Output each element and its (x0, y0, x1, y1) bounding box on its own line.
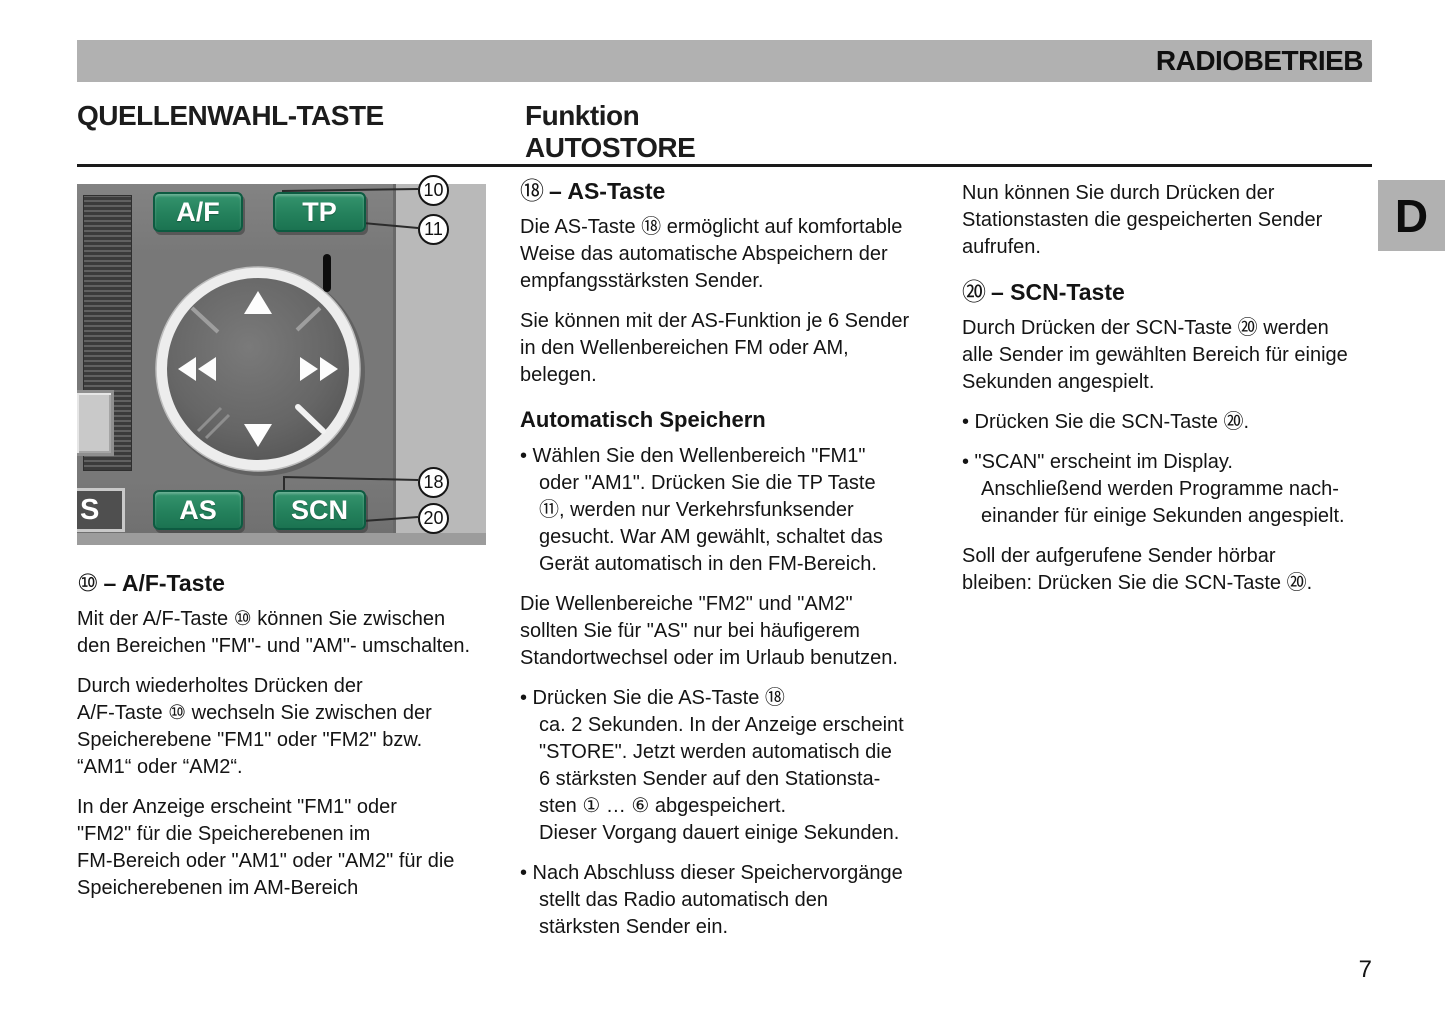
heading-af-number: ⑩ (77, 570, 99, 597)
callout-20: 20 (418, 503, 449, 534)
section-title-funktion-line1: Funktion (525, 100, 695, 132)
radio-illustration: S (77, 184, 486, 545)
heading-as-taste: ⑱– AS-Taste (520, 176, 952, 207)
heading-as-label: – AS-Taste (549, 178, 665, 204)
chapter-tab-d: D (1378, 180, 1445, 251)
heading-af-taste: ⑩– A/F-Taste (77, 568, 492, 599)
illustration-bottom-edge (77, 533, 486, 545)
bullet-select-band: • Wählen Sie den Wellenbereich "FM1" ode… (520, 443, 952, 578)
heading-af-label: – A/F-Taste (104, 570, 225, 596)
section-title-funktion-line2: AUTOSTORE (525, 132, 695, 164)
manual-page: RADIOBETRIEB QUELLENWAHL-TASTE Funktion … (0, 0, 1445, 1025)
paragraph-scn-intro: Durch Drücken der SCN-Taste ⑳ werden all… (962, 315, 1376, 396)
header-bar: RADIOBETRIEB (77, 40, 1372, 82)
heading-as-number: ⑱ (520, 178, 544, 205)
paragraph-fm2-am2-advice: Die Wellenbereiche "FM2" und "AM2" sollt… (520, 591, 952, 672)
bullet-scan-display: • "SCAN" erscheint im Display. Anschließ… (962, 449, 1376, 530)
section-title-funktion: Funktion AUTOSTORE (525, 100, 695, 164)
callout-18: 18 (418, 467, 449, 498)
bullet-press-as: • Drücken Sie die AS-Taste ⑱ ca. 2 Sekun… (520, 685, 952, 847)
callout-10: 10 (418, 175, 449, 206)
tp-button: TP (273, 192, 366, 232)
subheading-automatisch-speichern: Automatisch Speichern (520, 406, 952, 434)
heading-scn-number: ⑳ (962, 279, 986, 306)
paragraph-keep-station: Soll der aufgerufene Sender hörbar bleib… (962, 543, 1376, 597)
page-title: RADIOBETRIEB (1156, 40, 1363, 82)
bullet-after-store: • Nach Abschluss dieser Speichervorgänge… (520, 860, 952, 941)
column-right: Nun können Sie durch Drücken der Station… (962, 180, 1376, 610)
bullet-press-scn: • Drücken Sie die SCN-Taste ⑳. (962, 409, 1376, 436)
paragraph-as-capacity: Sie können mit der AS-Funktion je 6 Send… (520, 308, 952, 389)
column-left: ⑩– A/F-Taste Mit der A/F-Taste ⑩ können … (77, 568, 492, 915)
partial-light-button (77, 390, 114, 456)
callout-11: 11 (418, 214, 449, 245)
section-title-quellenwahl: QUELLENWAHL-TASTE (77, 100, 384, 132)
paragraph-af-memory-levels: Durch wiederholtes Drücken der A/F-Taste… (77, 673, 492, 781)
paragraph-station-recall: Nun können Sie durch Drücken der Station… (962, 180, 1376, 261)
af-button: A/F (153, 192, 243, 232)
heading-scn-label: – SCN-Taste (991, 279, 1125, 305)
partial-s-button: S (77, 488, 125, 532)
column-middle: ⑱– AS-Taste Die AS-Taste ⑱ ermöglicht au… (520, 176, 952, 954)
paragraph-as-intro: Die AS-Taste ⑱ ermöglicht auf komfortabl… (520, 214, 952, 295)
page-number: 7 (1320, 956, 1372, 984)
as-button: AS (153, 490, 243, 530)
paragraph-af-switch: Mit der A/F-Taste ⑩ können Sie zwischen … (77, 606, 492, 660)
paragraph-af-display: In der Anzeige erscheint "FM1" oder "FM2… (77, 794, 492, 902)
scn-button: SCN (273, 490, 366, 530)
partial-s-button-label: S (80, 494, 99, 527)
divider-rule (77, 164, 1372, 167)
heading-scn-taste: ⑳– SCN-Taste (962, 277, 1376, 308)
